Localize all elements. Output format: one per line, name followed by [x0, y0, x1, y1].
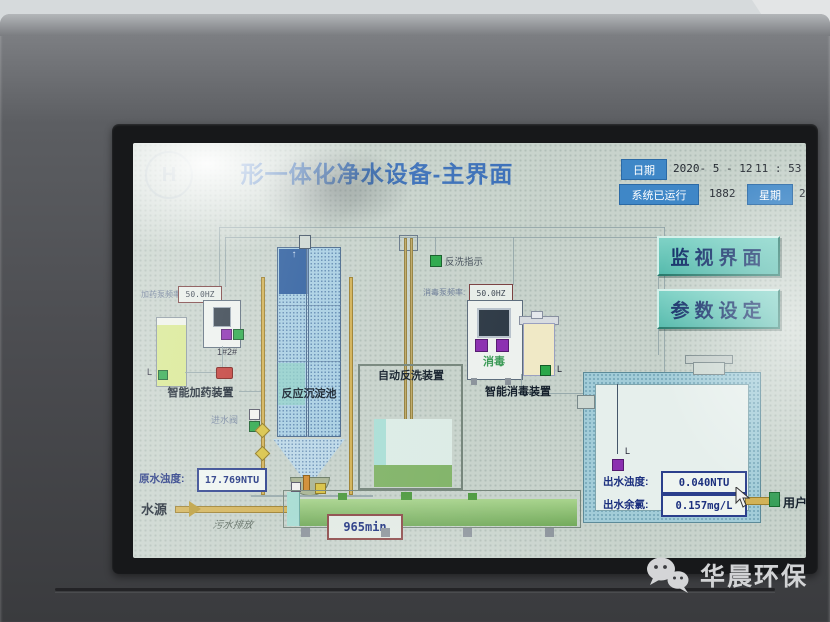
inlet-valve-label: 进水阀	[211, 413, 238, 426]
week-label-chip: 星期	[747, 184, 793, 205]
sediment-side-pipe-left	[261, 277, 265, 495]
clearwater-inlet-fitting	[577, 395, 595, 409]
backwash-unit-label: 自动反洗装置	[361, 367, 461, 383]
disinfect-freq-label: 消毒泵频率:	[423, 287, 465, 298]
basin-leg	[545, 528, 554, 537]
backwash-tank-water	[374, 419, 452, 487]
watermark-text: 华晨环保	[700, 557, 808, 593]
drain-water-tuft	[401, 492, 412, 500]
backwash-indicator	[430, 255, 442, 267]
wechat-icon	[645, 556, 691, 594]
disinfect-tank-nub	[531, 311, 543, 319]
user-label: 用户	[783, 494, 806, 511]
outlet-valve-icon	[769, 492, 780, 507]
drain-pump-icon	[303, 475, 310, 491]
page-title: 形一体化净水设备-主界面	[219, 155, 535, 189]
sediment-top-fitting	[299, 235, 311, 249]
runtime-label-chip: 系统已运行	[619, 184, 699, 205]
dosing-station-label: 智能加药装置	[148, 384, 253, 400]
pipe-valve-icon	[255, 446, 271, 462]
disinfect-indicator-purple	[475, 339, 488, 352]
panel-top-rim	[0, 14, 830, 36]
dosing-indicator-purple	[221, 329, 232, 340]
sediment-side-pipe-right	[349, 277, 353, 495]
dosing-cabinet-display	[213, 307, 231, 327]
clearwater-hatch-neck	[693, 362, 725, 375]
dosing-level-label: L	[147, 367, 152, 377]
date-label-chip: 日期	[621, 159, 667, 180]
drain-timer-value: 965min	[327, 514, 403, 540]
basin-leg	[463, 528, 472, 537]
basin-leg	[381, 528, 390, 537]
dosing-pump-icon	[216, 367, 233, 379]
drain-label: 污水排放	[212, 516, 255, 531]
inlet-valve-indicator-off	[249, 409, 260, 420]
basin-leg	[301, 528, 310, 537]
watermark: 华晨环保	[645, 556, 808, 594]
clearwater-level-label: L	[625, 446, 630, 456]
disinfect-level-label: L	[557, 364, 562, 374]
dosing-freq-label: 加药泵频率:	[141, 289, 183, 300]
dosing-pipe	[222, 346, 223, 367]
parameter-setting-button[interactable]: 参数设定	[657, 289, 780, 329]
sediment-divider-line	[277, 361, 341, 362]
pipe-routing-line	[225, 237, 663, 238]
drain-water-tuft	[338, 493, 347, 500]
runtime-value: 1882	[709, 187, 736, 200]
outlet-turbidity-label: 出水浊度:	[603, 474, 649, 489]
disinfect-cabinet-display	[477, 308, 511, 338]
week-value: 2	[799, 187, 806, 200]
backwash-water-bottom	[374, 465, 452, 487]
cursor-icon	[734, 487, 751, 508]
pipe-routing-line	[225, 237, 226, 287]
sediment-inlet-zone: ↑	[279, 249, 309, 294]
dosing-pumps-label: 1#2#	[217, 347, 237, 357]
disinfect-level-indicator	[540, 365, 551, 376]
drain-basin-inlet-column	[287, 492, 300, 526]
sediment-center-divider	[306, 247, 309, 437]
backwash-pipe-cap	[399, 235, 418, 251]
sediment-tank-label: 反应沉淀池	[269, 385, 349, 401]
clearwater-sensor-indicator	[612, 459, 624, 471]
hmi-screen[interactable]: H 形一体化净水设备-主界面 日期 2020- 5 - 12 11 : 53 :…	[133, 143, 806, 558]
disinfect-indicator-purple	[496, 339, 509, 352]
sediment-divider-line	[277, 305, 341, 306]
outlet-chlorine-label: 出水余氯:	[603, 497, 649, 512]
sediment-cone	[273, 439, 345, 479]
drain-water-tuft	[468, 493, 477, 500]
brand-logo: H	[145, 151, 193, 199]
raw-turbidity-label: 原水浊度:	[139, 471, 185, 486]
pipe-routing-line	[513, 237, 514, 285]
backwash-indicator-label: 反洗指示	[445, 254, 483, 268]
raw-turbidity-value: 17.769NTU	[197, 468, 267, 492]
water-source-label: 水源	[141, 499, 167, 518]
monitor-screen-button[interactable]: 监视界面	[657, 236, 780, 276]
dosing-indicator-green	[233, 329, 244, 340]
flow-arrow-icon	[189, 501, 201, 517]
time-value: 11 : 53 : 5	[755, 162, 806, 175]
pipe-routing-line	[219, 227, 665, 228]
clearwater-level-sensor	[617, 384, 618, 454]
disinfect-unit-label: 智能消毒装置	[463, 383, 573, 399]
pipe-routing-line	[435, 237, 436, 255]
date-value: 2020- 5 - 12	[673, 162, 752, 175]
dosing-pipe	[185, 372, 216, 373]
pipe-routing-line	[219, 227, 220, 287]
dosing-tank-headspace	[157, 318, 186, 325]
dosing-level-indicator	[158, 370, 168, 380]
disinfect-unit-text: 消毒	[469, 353, 519, 369]
